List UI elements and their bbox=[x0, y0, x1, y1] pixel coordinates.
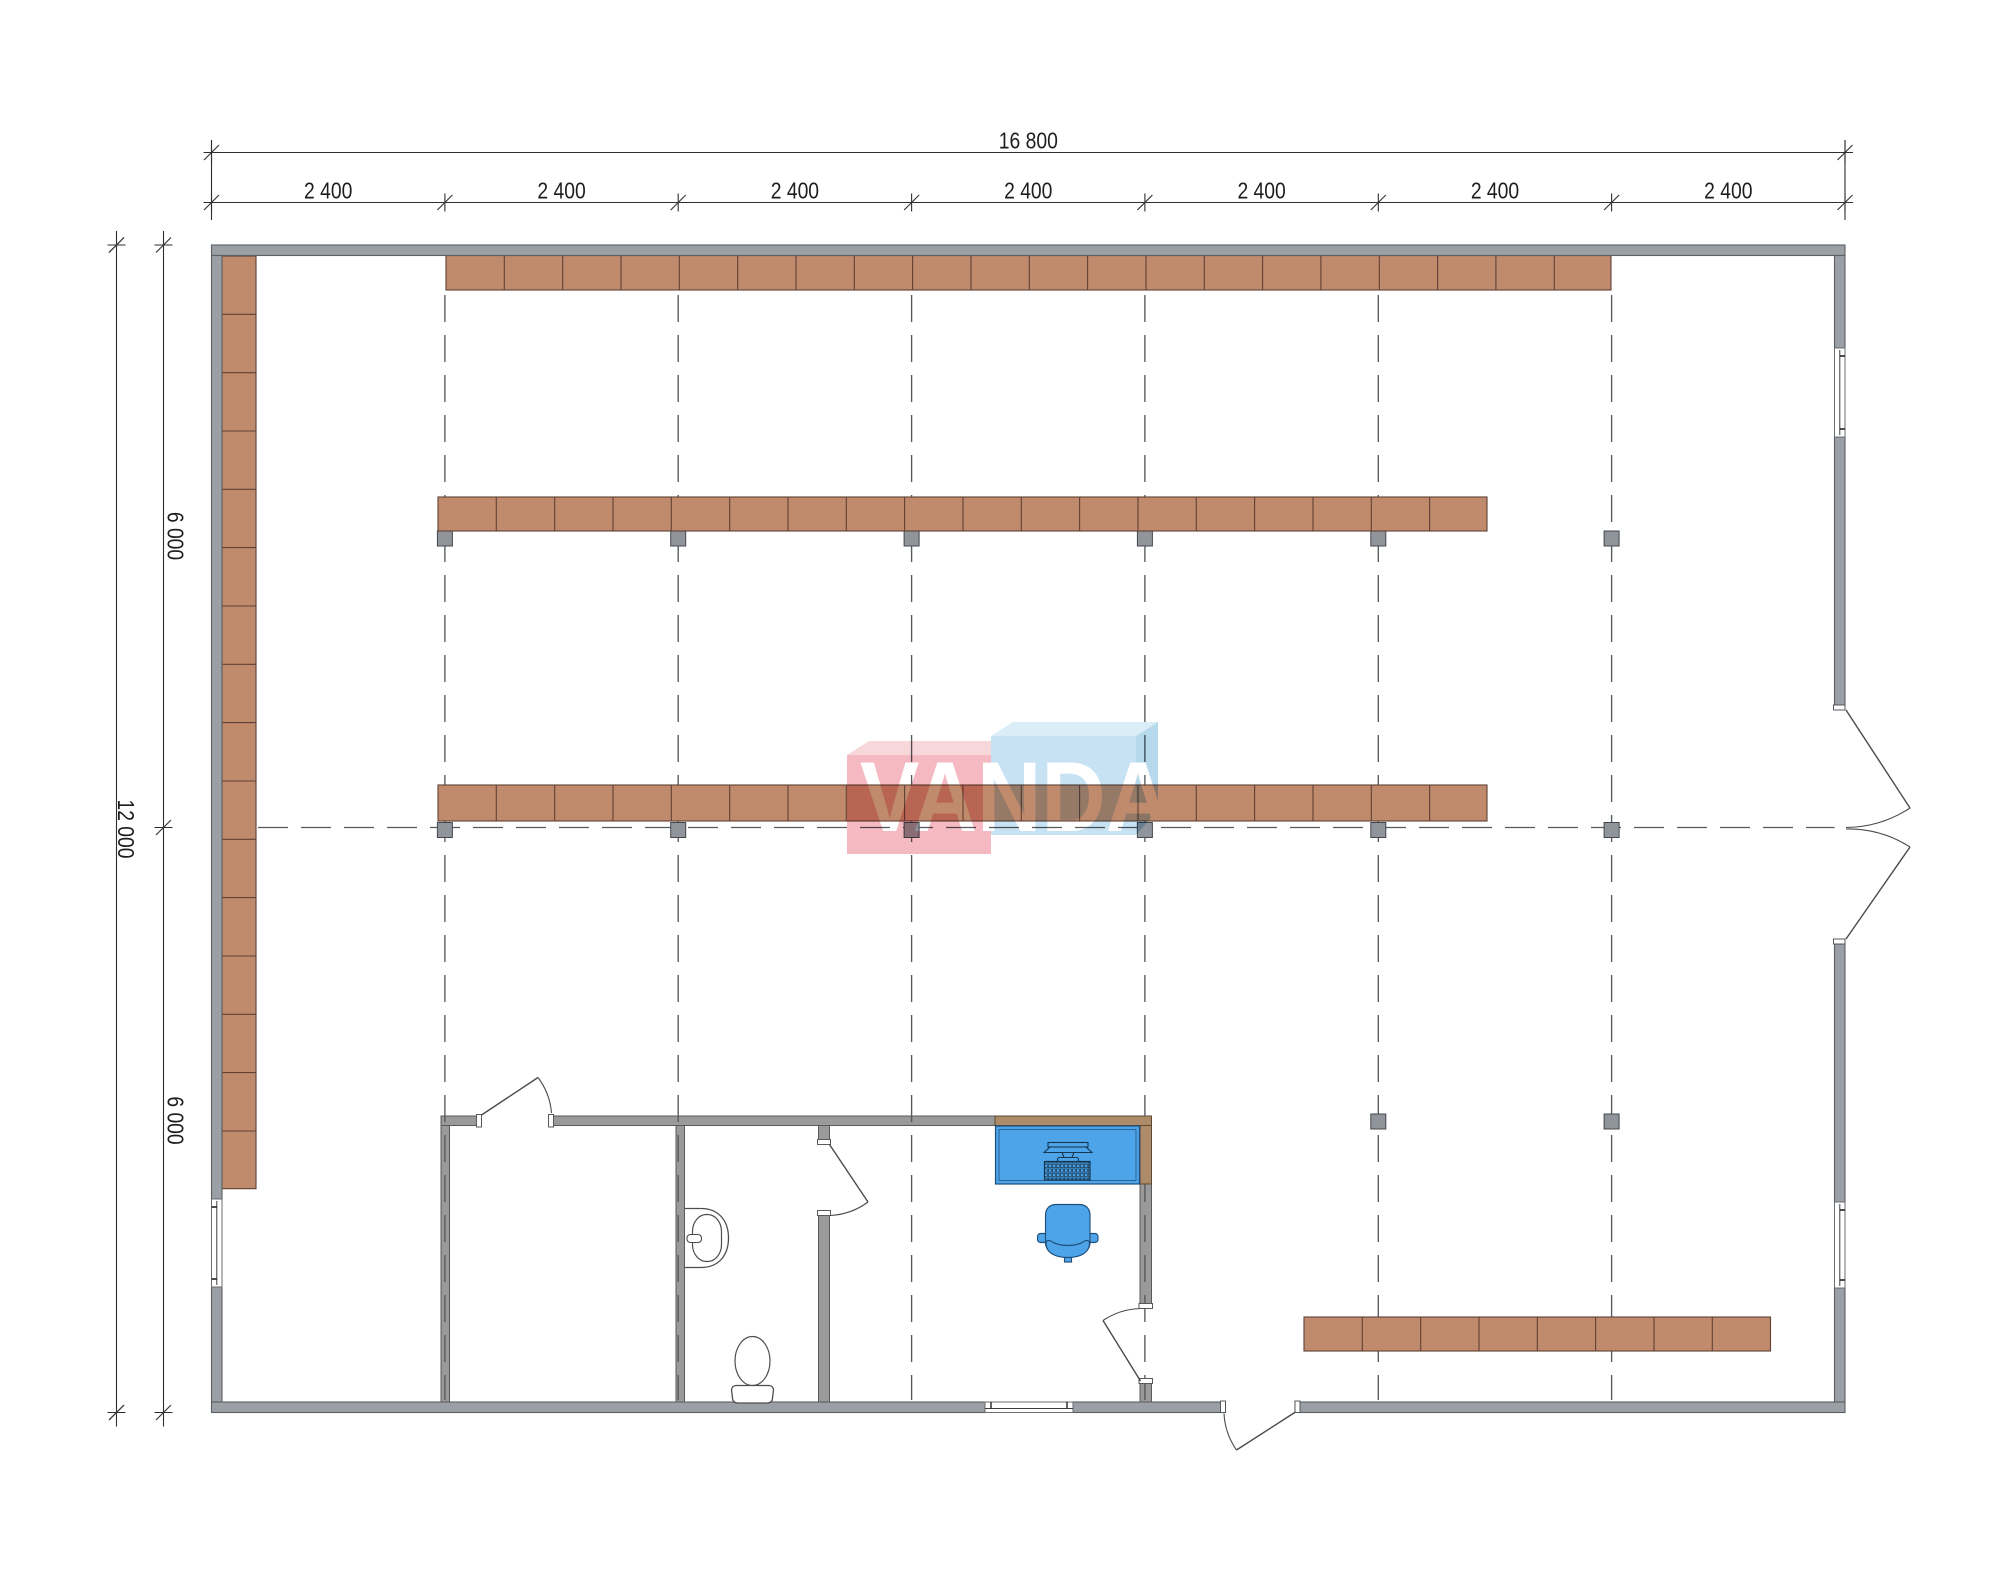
svg-text:2 400: 2 400 bbox=[1004, 179, 1052, 204]
svg-text:2 400: 2 400 bbox=[1704, 179, 1752, 204]
svg-text:2 400: 2 400 bbox=[537, 179, 585, 204]
svg-text:6 000: 6 000 bbox=[162, 1096, 187, 1144]
svg-text:2 400: 2 400 bbox=[304, 179, 352, 204]
svg-text:VANDA: VANDA bbox=[860, 742, 1170, 852]
svg-text:2 400: 2 400 bbox=[1471, 179, 1519, 204]
svg-text:2 400: 2 400 bbox=[1237, 179, 1285, 204]
svg-text:16 800: 16 800 bbox=[999, 129, 1058, 154]
svg-text:12 000: 12 000 bbox=[113, 799, 138, 858]
svg-text:2 400: 2 400 bbox=[771, 179, 819, 204]
svg-text:6 000: 6 000 bbox=[162, 512, 187, 560]
